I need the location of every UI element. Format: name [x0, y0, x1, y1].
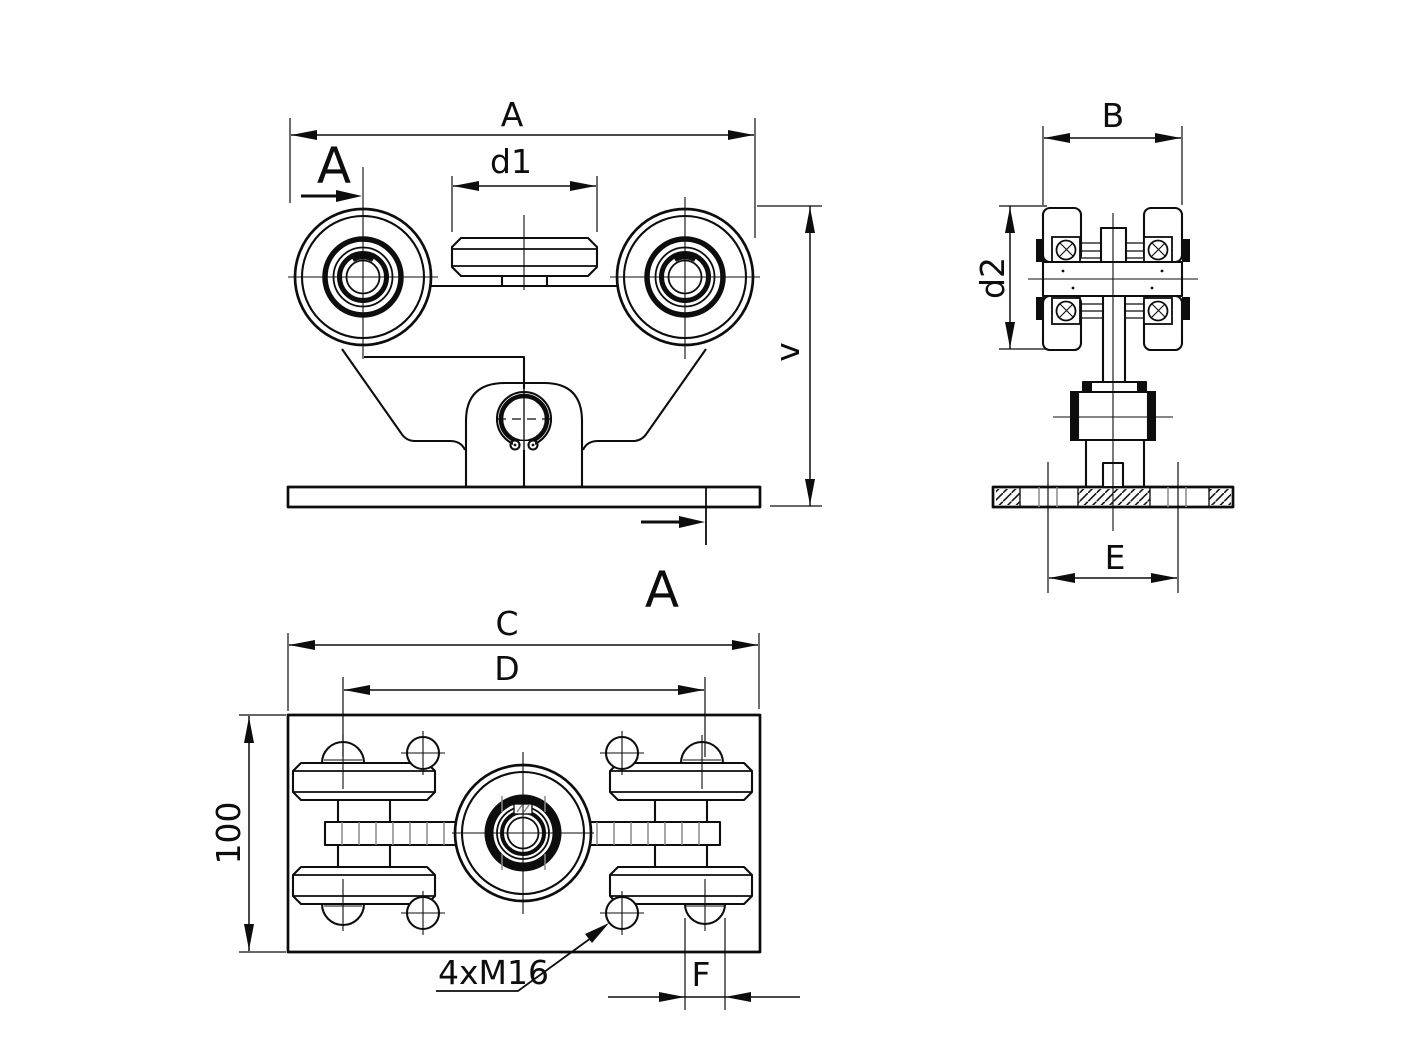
seal: [1182, 239, 1190, 262]
section-letter-bottom: A: [645, 561, 679, 619]
dim-label-100: 100: [209, 802, 248, 865]
plan-view: 4xM16 C D 100: [209, 604, 800, 1010]
seal: [1036, 239, 1044, 262]
drawing-canvas: A A A d1 v: [0, 0, 1416, 1062]
section-shaft: [1103, 296, 1125, 382]
dim-label-d1: d1: [490, 142, 532, 181]
section-arrow-icon: [679, 516, 705, 528]
dim-label-A: A: [501, 95, 524, 134]
bearing-top-left: [1052, 237, 1080, 263]
front-view: A A A d1 v: [288, 95, 822, 619]
dim-label-C: C: [495, 604, 518, 643]
technical-drawing-page: A A A d1 v: [0, 0, 1416, 1062]
seal: [1036, 297, 1044, 320]
front-wheel-right: [610, 197, 760, 359]
dim-plate-length-C: C: [288, 604, 759, 711]
front-circlip: [494, 387, 554, 487]
section-mark-top: A: [301, 137, 362, 202]
dim-wheel-diameter-d2: d2: [973, 206, 1047, 349]
dim-height-v: v: [757, 206, 822, 506]
bearing-bottom-right: [1144, 298, 1172, 324]
plan-wheel-top-left: [293, 763, 435, 800]
dim-plate-width-100: 100: [209, 715, 286, 952]
dim-label-v: v: [768, 342, 807, 362]
dim-label-D: D: [494, 649, 519, 688]
section-view: B d2 E: [973, 96, 1233, 593]
thread-callout-label: 4xM16: [438, 953, 549, 992]
bearing-top-right: [1144, 237, 1172, 263]
plan-wheel-bottom-right: [610, 867, 752, 904]
front-spacer: [452, 215, 597, 290]
plan-wheel-top-right: [610, 763, 752, 800]
front-base-plate: [288, 487, 760, 507]
dim-wheel-width-B: B: [1043, 96, 1182, 205]
dim-label-E: E: [1105, 538, 1126, 577]
dim-label-d2: d2: [973, 257, 1012, 299]
seal: [1182, 297, 1190, 320]
dim-label-F: F: [692, 955, 711, 994]
section-letter-top: A: [317, 137, 351, 195]
bearing-bottom-left: [1052, 298, 1080, 324]
plan-wheel-bottom-left: [293, 867, 435, 904]
dim-label-B: B: [1102, 96, 1125, 135]
